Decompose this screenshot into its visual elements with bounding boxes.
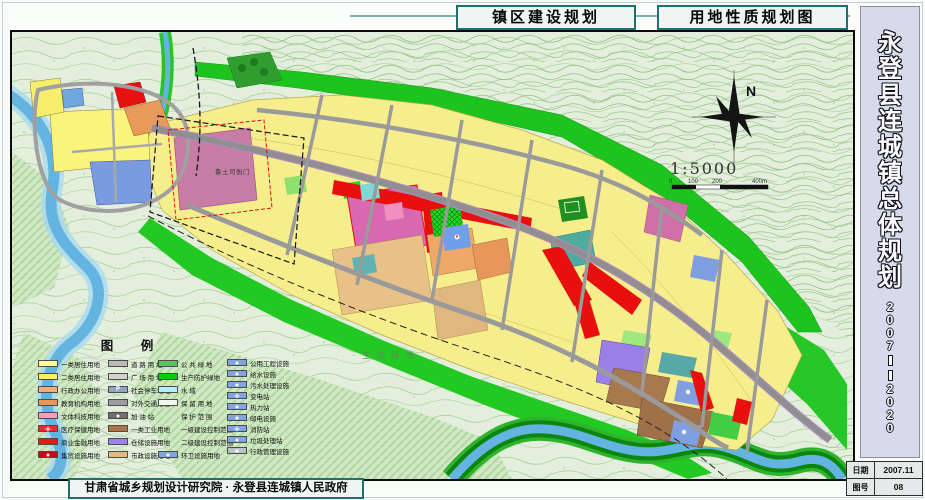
title-char: 镇 — [878, 161, 902, 187]
legend-label: 行政办公用地 — [61, 385, 100, 395]
legend-label: 保 留 用 地 — [181, 398, 212, 408]
legend-label: 污水处理设施 — [250, 380, 289, 390]
legend-swatch — [38, 451, 58, 458]
scale-tick-400: 400m — [752, 179, 767, 185]
legend-label: 商业金融用地 — [61, 437, 100, 447]
legend-swatch-icon — [117, 414, 120, 417]
legend-item: 邮电设施 — [227, 412, 289, 423]
year-digit: 7 — [887, 340, 894, 353]
label-eco-green: 生态绿地 — [362, 350, 420, 360]
date-label: 日期 — [847, 462, 875, 478]
legend-item: 医疗保健用地 — [38, 422, 100, 435]
legend-swatch-icon — [236, 383, 239, 386]
legend-item: 二级建设控制范围 — [158, 435, 233, 448]
legend-label: 保 护 范 围 — [181, 411, 212, 421]
sidebar-title-panel: 永登县连城镇总体规划 20072020 — [860, 6, 920, 458]
legend-column-1: 一类居住用地二类居住用地行政办公用地教育机构用地文体科技用地医疗保健用地商业金融… — [38, 357, 100, 461]
legend-item: 文体科技用地 — [38, 409, 100, 422]
title-char: 总 — [878, 187, 902, 213]
legend-label: 给水设施 — [250, 369, 276, 379]
scale-tick-100: 100 — [688, 179, 699, 185]
legend-label: 垃圾处理站 — [250, 435, 283, 445]
legend-label: 文体科技用地 — [61, 411, 100, 421]
legend-swatch-icon — [235, 393, 240, 398]
drawing-info-table: 日期 2007.11 图号 08 — [846, 461, 923, 496]
utility-icon — [686, 390, 690, 394]
legend-swatch — [38, 386, 58, 393]
legend-swatch — [158, 451, 178, 458]
title-box-construction-plan: 镇区建设规划 — [456, 5, 636, 30]
parcel-utility-nw — [62, 88, 84, 108]
title-char: 登 — [878, 57, 902, 83]
legend-label: 环卫设施用地 — [181, 450, 220, 460]
legend-swatch — [38, 438, 58, 445]
legend-swatch — [38, 373, 58, 380]
legend-swatch — [158, 425, 178, 432]
legend-swatch — [227, 392, 247, 399]
legend-item: 水 域 — [158, 383, 233, 396]
legend-swatch — [108, 425, 128, 432]
compass-north-label: N — [746, 83, 756, 99]
legend-item: 消防站 — [227, 423, 289, 434]
utility-icon — [682, 430, 686, 434]
legend-item: 保 护 范 围 — [158, 409, 233, 422]
legend-swatch — [227, 447, 247, 454]
legend-title: 图 例 — [58, 335, 208, 354]
title-char: 划 — [878, 265, 902, 291]
legend-label: 公 共 绿 地 — [181, 359, 212, 369]
legend-label: 一级建设控制范围 — [181, 424, 233, 434]
sheet-no-value: 08 — [875, 479, 922, 495]
legend-swatch — [158, 360, 178, 367]
legend-label: 教育机构用地 — [61, 398, 100, 408]
legend-swatch: P — [108, 386, 128, 393]
park-tree — [238, 64, 246, 72]
legend-item: 教育机构用地 — [38, 396, 100, 409]
info-row-date: 日期 2007.11 — [847, 462, 922, 479]
legend-item: 公用工程设施 — [227, 357, 289, 368]
legend-label: 二级建设控制范围 — [181, 437, 233, 447]
legend-swatch-icon — [236, 361, 239, 364]
legend-item: 给水设施 — [227, 368, 289, 379]
plan-years: 20072020 — [887, 301, 894, 435]
credit-bar: 甘肃省城乡规划设计研究院 · 永登县连城镇人民政府 — [68, 478, 364, 499]
legend-swatch — [38, 399, 58, 406]
legend-item: 污水处理设施 — [227, 379, 289, 390]
title-box-landuse-map: 用地性质规划图 — [657, 5, 848, 30]
legend-swatch — [227, 436, 247, 443]
title-char: 城 — [878, 135, 902, 161]
legend-item: 行政管理设施 — [227, 445, 289, 456]
legend-label: 一类居住用地 — [61, 359, 100, 369]
legend-item: 集贸设施用地 — [38, 448, 100, 461]
legend-swatch — [108, 438, 128, 445]
legend-swatch — [108, 399, 128, 406]
legend-item: 生产防护绿地 — [158, 370, 233, 383]
legend-label: 集贸设施用地 — [61, 450, 100, 460]
legend-swatch-icon — [236, 449, 239, 452]
parcel-pink-small — [384, 202, 404, 221]
park-tree — [260, 68, 268, 76]
legend-column-3: 公 共 绿 地生产防护绿地水 域保 留 用 地保 护 范 围一级建设控制范围二级… — [158, 357, 233, 461]
legend-label: 生产防护绿地 — [181, 372, 220, 382]
year-digit: 0 — [887, 422, 894, 435]
sheet-no-label: 图号 — [847, 479, 875, 495]
scale-bar-seg2 — [720, 185, 768, 189]
map-canvas: 鲁土司衙门 生态绿地 N 1:5000 0 100 200 400m 图 例 一… — [10, 30, 855, 481]
scale-ratio: 1:5000 — [670, 159, 738, 178]
scale-tick-200: 200 — [712, 179, 723, 185]
legend-item: 商业金融用地 — [38, 435, 100, 448]
parcel-utility-west — [90, 160, 152, 205]
legend-swatch — [158, 438, 178, 445]
title-char: 县 — [878, 83, 902, 109]
legend-swatch — [158, 373, 178, 380]
legend-item: 垃圾处理站 — [227, 434, 289, 445]
legend-swatch-icon — [236, 438, 239, 441]
legend-swatch-icon — [47, 453, 50, 456]
title-char: 连 — [878, 109, 902, 135]
legend-column-4: 公用工程设施给水设施污水处理设施变电站热力站邮电设施消防站垃圾处理站行政管理设施 — [227, 357, 289, 456]
legend-swatch — [108, 373, 128, 380]
legend-label: 变电站 — [250, 391, 270, 401]
legend-item: 热力站 — [227, 401, 289, 412]
legend-swatch-icon: P — [116, 387, 120, 392]
legend-label: 加 油 站 — [131, 411, 154, 421]
legend-swatch — [108, 412, 128, 419]
legend-label: 医疗保健用地 — [61, 424, 100, 434]
legend-item: 变电站 — [227, 390, 289, 401]
parcel-stadium — [558, 196, 588, 222]
legend-swatch — [38, 412, 58, 419]
legend-item: 保 留 用 地 — [158, 396, 233, 409]
info-row-sheet: 图号 08 — [847, 479, 922, 495]
legend-swatch-icon — [167, 453, 170, 456]
legend-swatch — [158, 412, 178, 419]
legend-item: 一级建设控制范围 — [158, 422, 233, 435]
legend-swatch-icon — [236, 372, 239, 375]
year-dash — [888, 370, 893, 381]
legend-swatch — [158, 399, 178, 406]
legend-swatch — [108, 360, 128, 367]
legend-item: 二类居住用地 — [38, 370, 100, 383]
legend-swatch-icon — [236, 405, 239, 408]
legend-label: 消防站 — [250, 424, 270, 434]
legend-swatch-icon — [46, 426, 51, 431]
legend-label: 热力站 — [250, 402, 270, 412]
legend-label: 公用工程设施 — [250, 358, 289, 368]
title-char: 体 — [878, 213, 902, 239]
scale-bar-seg1 — [672, 185, 696, 189]
legend-item: 环卫设施用地 — [158, 448, 233, 461]
legend-swatch — [158, 386, 178, 393]
legend-swatch-icon — [235, 426, 240, 431]
legend-swatch — [227, 425, 247, 432]
legend-item: 行政办公用地 — [38, 383, 100, 396]
legend-swatch — [227, 359, 247, 366]
date-value: 2007.11 — [875, 462, 922, 478]
legend-swatch — [38, 425, 58, 432]
year-dash — [888, 355, 893, 366]
legend-label: 邮电设施 — [250, 413, 276, 423]
title-char: 规 — [878, 239, 902, 265]
legend-swatch — [227, 403, 247, 410]
legend-label: 二类居住用地 — [61, 372, 100, 382]
legend-item: 公 共 绿 地 — [158, 357, 233, 370]
legend-swatch-icon — [236, 416, 239, 419]
legend-swatch — [108, 451, 128, 458]
legend: 图 例 一类居住用地二类居住用地行政办公用地教育机构用地文体科技用地医疗保健用地… — [30, 335, 342, 477]
title-char: 永 — [878, 31, 902, 57]
legend-label: 行政管理设施 — [250, 446, 289, 456]
legend-item: 一类居住用地 — [38, 357, 100, 370]
map-series-title: 永登县连城镇总体规划 — [878, 31, 902, 291]
label-historic-site: 鲁土司衙门 — [215, 167, 250, 176]
legend-swatch — [227, 381, 247, 388]
park-tree — [250, 58, 258, 66]
legend-swatch — [227, 370, 247, 377]
legend-swatch — [38, 360, 58, 367]
legend-label: 水 域 — [181, 385, 196, 395]
legend-swatch — [227, 414, 247, 421]
